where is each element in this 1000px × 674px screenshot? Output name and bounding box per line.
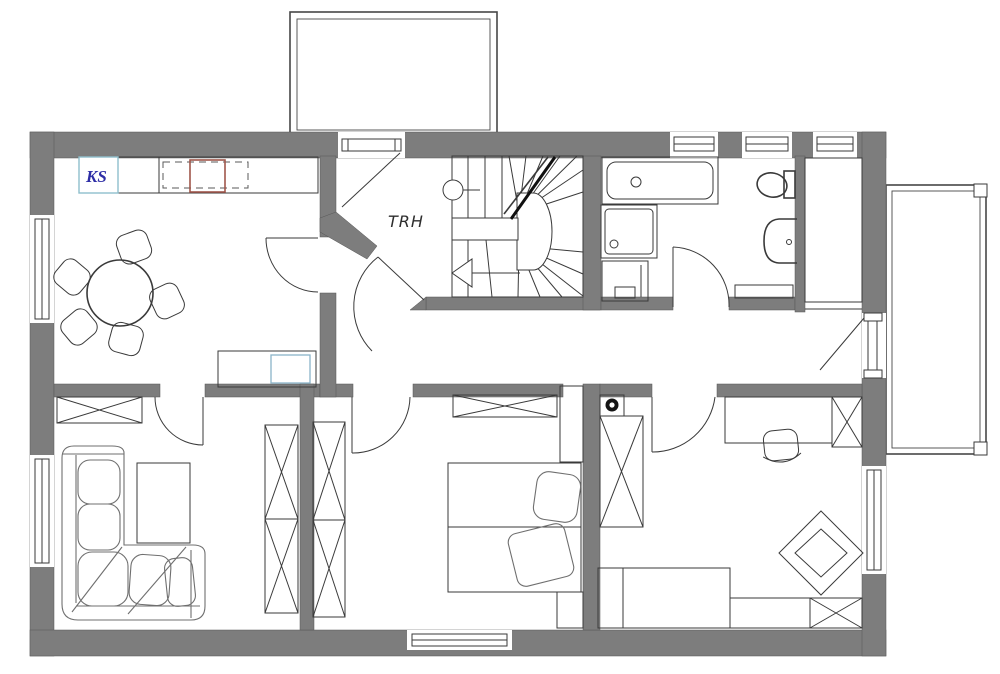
stair-direction-arrow [452,259,520,287]
dining-chairs [50,227,187,357]
window-living-left [30,455,54,567]
floorplan-canvas: TRH KS [0,0,1000,674]
right-balcony [886,184,987,455]
wardrobe-x-tall [265,425,298,613]
coffee-table [137,463,190,543]
door-living [155,397,203,445]
play-rug [779,511,863,595]
door-kids [652,397,715,452]
wardrobe-x [810,598,862,628]
corner-sofa [62,446,205,620]
closet-room [805,158,862,309]
wardrobe-x-tall [313,422,345,617]
stairwell-label: TRH [388,212,424,231]
wall-living-bedroom [300,384,314,630]
balcony-door [820,313,886,378]
angled-wall-vestibule [320,212,377,259]
washing-machine [602,261,648,301]
balcony-door-leaf [820,318,864,370]
wardrobe-x-tall [600,416,643,527]
wall-stair-bath [583,156,601,310]
stair-newel-post [443,180,463,200]
bathtub [602,157,718,204]
staircase: TRH [388,156,583,297]
window-closet [813,132,857,158]
duvet [506,522,575,588]
shower [601,205,657,258]
wardrobe-x [57,397,142,423]
window-bath-2 [742,132,792,158]
pillow [532,470,582,524]
window-dining-left [30,215,54,323]
window-kids-right [862,466,886,574]
cooktop [190,160,225,192]
fridge-label: KS [85,167,107,186]
wall-bedroom-kids [583,384,600,630]
wall-stair-hall [426,297,600,310]
dining-area [50,227,316,387]
balcony-post [974,184,987,197]
double-bed [448,463,582,592]
sideboard [218,351,316,387]
tall-cabinet [560,386,583,462]
kids-room [598,395,863,628]
door-dining [266,238,318,292]
entrance-porch [290,12,497,137]
bench [730,598,810,628]
vent-shaft [600,395,624,416]
stair-landing [452,218,518,240]
radiator-bench [735,285,793,298]
bedroom [313,386,583,628]
window-bedroom-bottom [407,630,512,650]
sink [764,219,797,263]
wardrobe-x [453,395,557,417]
upper-cabinets-dashed [163,162,248,188]
door-vestibule-hall [354,257,424,351]
living-room [57,397,298,620]
door-bath [673,247,729,307]
sideboard-inner [271,355,310,383]
nightstand [557,592,583,628]
wall-bath-closet [795,156,805,312]
single-bed [598,568,730,628]
wall-hall-kids [717,384,862,397]
window-bath-1 [670,132,718,158]
wall-living-dining [54,384,160,397]
balcony-post [974,442,987,455]
floorplan-drawing: TRH KS [0,0,1000,674]
kitchen: KS [79,157,318,193]
dining-chair [57,305,101,349]
desk [725,397,832,443]
entry-door-leaf [342,153,400,207]
wardrobe-x [832,397,862,447]
door-bedroom [352,397,410,453]
round-dining-table [87,260,153,326]
toilet [755,170,795,200]
entry-opening [338,132,405,207]
bathroom [601,157,797,301]
office-chair [761,428,802,464]
